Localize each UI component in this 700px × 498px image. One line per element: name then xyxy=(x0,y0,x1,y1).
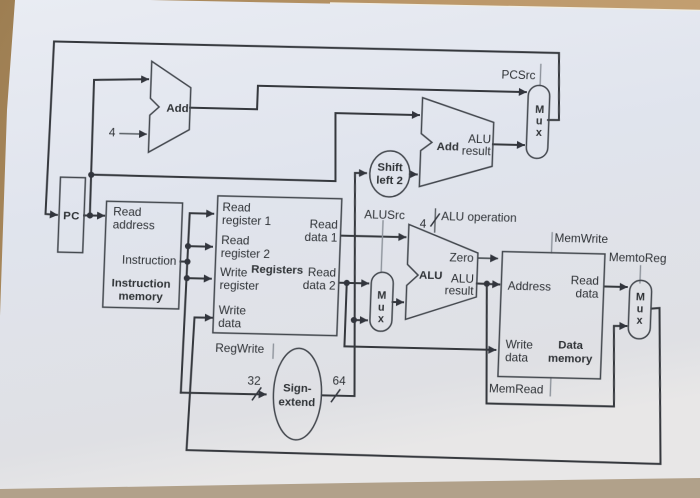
svg-text:data: data xyxy=(575,286,599,301)
svg-text:x: x xyxy=(536,127,542,139)
svg-text:4: 4 xyxy=(419,217,427,231)
svg-text:result: result xyxy=(444,283,474,298)
svg-text:M: M xyxy=(377,290,386,302)
svg-text:Add: Add xyxy=(166,103,189,116)
svg-text:Registers: Registers xyxy=(251,264,303,277)
svg-text:32: 32 xyxy=(247,374,261,388)
svg-text:extend: extend xyxy=(278,396,315,409)
svg-text:Zero: Zero xyxy=(449,250,474,265)
svg-text:data 1: data 1 xyxy=(304,230,337,245)
svg-text:data 2: data 2 xyxy=(303,278,336,293)
svg-text:x: x xyxy=(378,313,384,325)
svg-text:PCSrc: PCSrc xyxy=(501,68,536,83)
svg-text:left 2: left 2 xyxy=(376,175,403,188)
svg-text:register: register xyxy=(219,278,259,293)
svg-text:M: M xyxy=(636,291,645,303)
svg-text:u: u xyxy=(636,303,643,315)
svg-text:RegWrite: RegWrite xyxy=(215,341,265,356)
svg-text:ALU: ALU xyxy=(419,270,443,283)
svg-text:ALUSrc: ALUSrc xyxy=(364,207,405,222)
svg-text:Address: Address xyxy=(507,279,551,294)
svg-text:u: u xyxy=(536,115,543,127)
svg-text:address: address xyxy=(113,217,156,232)
svg-text:ALU operation: ALU operation xyxy=(441,209,517,225)
svg-text:register 2: register 2 xyxy=(221,246,271,261)
svg-text:Sign-: Sign- xyxy=(283,382,312,395)
svg-text:PC: PC xyxy=(63,210,80,222)
svg-text:Data: Data xyxy=(558,339,584,352)
svg-text:register 1: register 1 xyxy=(222,213,272,228)
svg-text:64: 64 xyxy=(332,374,346,388)
svg-text:memory: memory xyxy=(118,291,163,304)
svg-text:Shift: Shift xyxy=(377,162,403,175)
svg-text:Instruction: Instruction xyxy=(122,253,177,268)
svg-text:result: result xyxy=(462,144,492,159)
svg-text:x: x xyxy=(636,315,642,327)
svg-text:u: u xyxy=(378,302,385,314)
svg-text:M: M xyxy=(535,104,544,116)
svg-text:MemtoReg: MemtoReg xyxy=(609,250,667,265)
svg-text:Instruction: Instruction xyxy=(111,277,170,290)
svg-text:MemRead: MemRead xyxy=(489,381,544,396)
svg-text:data: data xyxy=(505,350,529,365)
svg-text:data: data xyxy=(218,316,242,331)
svg-text:Add: Add xyxy=(436,141,459,154)
svg-text:4: 4 xyxy=(109,125,117,139)
svg-text:MemWrite: MemWrite xyxy=(554,231,608,246)
svg-text:memory: memory xyxy=(548,353,593,366)
